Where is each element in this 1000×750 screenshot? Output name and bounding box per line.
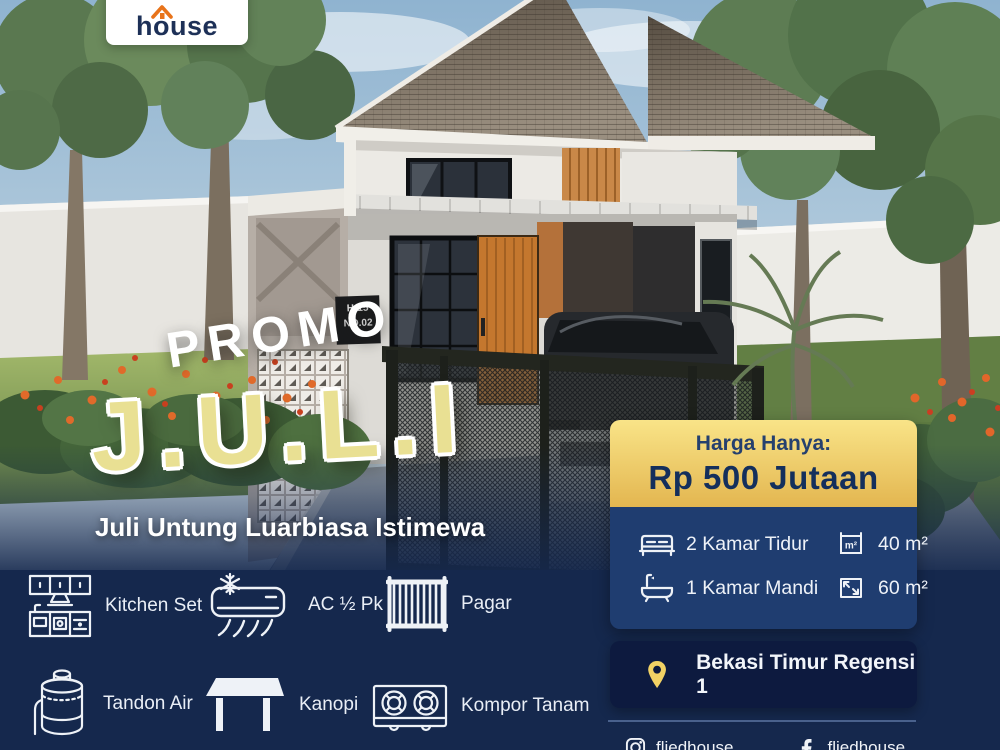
social-instagram: fliedhouse: [625, 737, 734, 750]
amenity-label: Pagar: [461, 593, 512, 615]
footer-divider: [608, 720, 916, 722]
amenity-pagar: Pagar: [386, 574, 512, 634]
promo-flyer: house H-15 NO.02 PROMO J.U.L.I Juli Untu…: [0, 0, 1000, 750]
social-facebook: fliedhouse: [798, 737, 906, 750]
stove-icon: [372, 678, 448, 734]
promo-title: J.U.L.I: [53, 364, 508, 490]
location-pin-icon: [644, 658, 670, 692]
spec-bedrooms: 2 Kamar Tidur: [686, 533, 824, 556]
amenity-kitchen-set: Kitchen Set: [28, 574, 202, 638]
amenity-label: Kitchen Set: [105, 595, 202, 617]
location-card: Bekasi Timur Regensi 1: [610, 641, 917, 708]
land-area-icon: [834, 574, 868, 602]
water-tank-icon: [32, 666, 90, 742]
specs-panel: 2 Kamar Tidur m² 40 m² 1 Kamar Mandi: [610, 507, 917, 629]
ac-icon: [200, 570, 295, 640]
fence-icon: [386, 574, 448, 634]
promo-tagline: Juli Untung Luarbiasa Istimewa: [50, 512, 530, 543]
amenity-label: Kompor Tanam: [461, 695, 590, 717]
amenity-label: Kanopi: [299, 694, 358, 716]
svg-text:m²: m²: [845, 541, 858, 552]
price-label: Harga Hanya:: [618, 432, 909, 456]
brand-logo: house: [136, 13, 218, 40]
social-row: fliedhouse fliedhouse: [625, 737, 905, 750]
location-label: Bekasi Timur Regensi 1: [696, 651, 917, 699]
spec-bathrooms: 1 Kamar Mandi: [686, 577, 824, 600]
amenity-tandon-air: Tandon Air: [32, 666, 193, 742]
bathtub-icon: [638, 573, 676, 603]
price-header: Harga Hanya: Rp 500 Jutaan: [610, 420, 917, 507]
canopy-icon: [202, 676, 286, 734]
facebook-icon: [798, 738, 818, 750]
building-area-icon: m²: [834, 530, 868, 558]
bed-icon: [638, 530, 676, 558]
spec-building-area: 40 m²: [878, 533, 928, 556]
amenity-kanopi: Kanopi: [202, 676, 358, 734]
kitchen-set-icon: [28, 574, 92, 638]
price-value: Rp 500 Jutaan: [618, 459, 909, 497]
brand-logo-card: house: [106, 0, 248, 45]
brand-logo-text: house: [136, 11, 218, 41]
amenity-ac: AC ½ Pk: [200, 570, 383, 640]
instagram-icon: [625, 737, 646, 750]
price-card: Harga Hanya: Rp 500 Jutaan 2 Kamar Tidur…: [610, 420, 917, 629]
instagram-handle: fliedhouse: [656, 738, 734, 750]
amenity-label: AC ½ Pk: [308, 594, 383, 616]
facebook-handle: fliedhouse: [828, 738, 906, 750]
amenity-kompor-tanam: Kompor Tanam: [372, 678, 590, 734]
amenity-label: Tandon Air: [103, 693, 193, 715]
roof-icon: [150, 4, 174, 20]
spec-land-area: 60 m²: [878, 577, 928, 600]
